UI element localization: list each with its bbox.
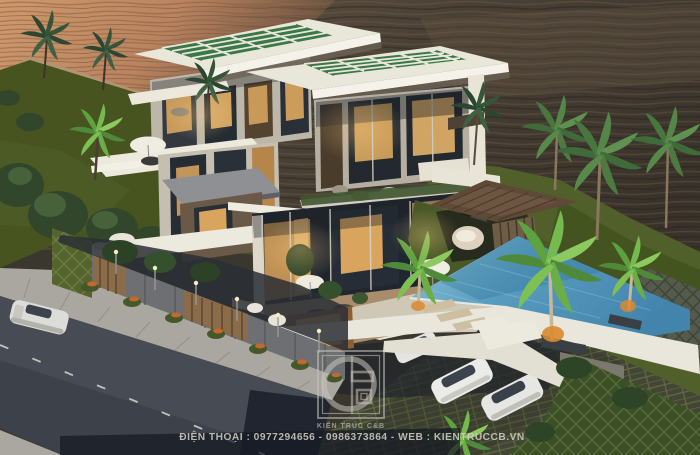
svg-text:ĐIỆN THOẠI : 0977294656 - 09: ĐIỆN THOẠI : 0977294656 - 0986373864 - W… [179, 430, 525, 443]
